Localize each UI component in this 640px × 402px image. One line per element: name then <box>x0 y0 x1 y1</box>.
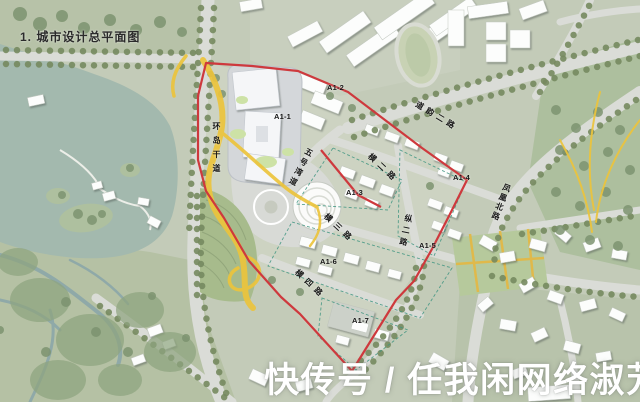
masterplan-drawing <box>0 0 640 402</box>
road-label-ring-trunk: 环岛干道 <box>211 122 222 178</box>
roundabout-plaza <box>254 190 288 224</box>
parcel-label-a1-7: A1-7 <box>352 316 369 325</box>
parcel-label-a1-5: A1-5 <box>419 241 436 250</box>
watermark: 快传号 / 任我闲网络淑芳 <box>264 352 640 402</box>
parcel-label-a1-6: A1-6 <box>320 257 337 266</box>
parcel-label-a1-3: A1-3 <box>346 188 363 197</box>
masterplan-map: 1. 城市设计总平面图 A1-1 A1-2 A1-3 A1-4 A1-5 A1-… <box>0 0 640 402</box>
parcel-label-a1-2: A1-2 <box>327 83 344 92</box>
parcel-label-a1-1: A1-1 <box>274 112 291 121</box>
parcel-label-a1-4: A1-4 <box>453 173 470 182</box>
plan-title: 1. 城市设计总平面图 <box>20 28 140 45</box>
